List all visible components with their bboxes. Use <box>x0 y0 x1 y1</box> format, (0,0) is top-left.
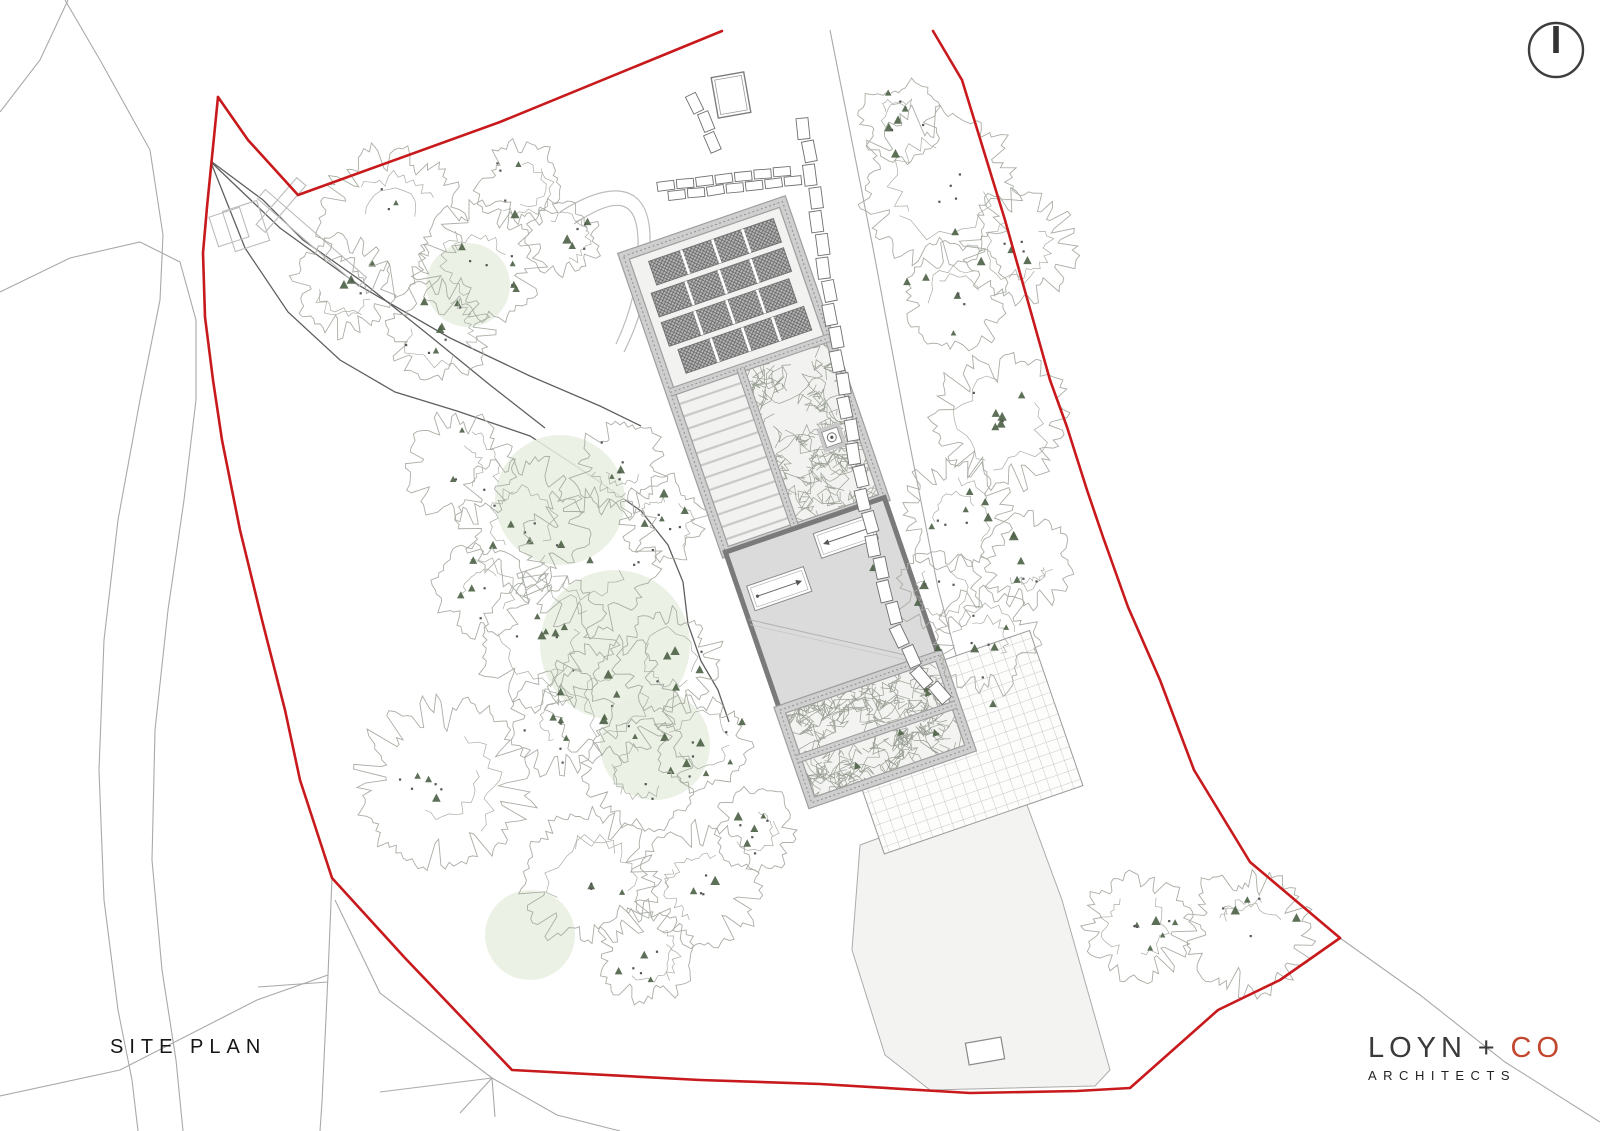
tree-canopy <box>714 786 797 872</box>
tree-canopy <box>906 240 1008 350</box>
logo-name-accent: CO <box>1511 1032 1565 1064</box>
tree-canopy <box>858 78 940 165</box>
tree-canopy <box>858 105 1022 265</box>
entrance-structure <box>209 207 249 246</box>
tree-canopy <box>598 899 693 1005</box>
entrance-structure <box>256 178 306 233</box>
architect-logo: LOYN + CO ARCHITECTS <box>1368 1032 1564 1083</box>
stone-wall <box>657 166 802 200</box>
tree-canopy <box>354 694 538 870</box>
logo-name-dark: LOYN + <box>1368 1032 1511 1064</box>
logo-subtitle: ARCHITECTS <box>1368 1068 1564 1083</box>
logo-wordmark: LOYN + CO <box>1368 1032 1564 1065</box>
tree-canopy <box>1081 870 1197 984</box>
north-arrow-needle <box>1553 26 1559 53</box>
tree-canopy <box>636 819 763 948</box>
site-plan-drawing <box>0 0 1600 1131</box>
site-boundary-line <box>218 31 722 195</box>
tree-canopy <box>903 458 1014 572</box>
site-plan-page: SITE PLAN LOYN + CO ARCHITECTS <box>0 0 1600 1131</box>
north-arrow <box>1529 23 1583 77</box>
page-title: SITE PLAN <box>110 1036 266 1059</box>
tree-canopy <box>473 139 560 228</box>
tree-canopy <box>1184 870 1316 999</box>
tree-canopy <box>981 510 1074 610</box>
tree-canopy <box>519 807 662 944</box>
tree-canopy <box>289 232 396 340</box>
